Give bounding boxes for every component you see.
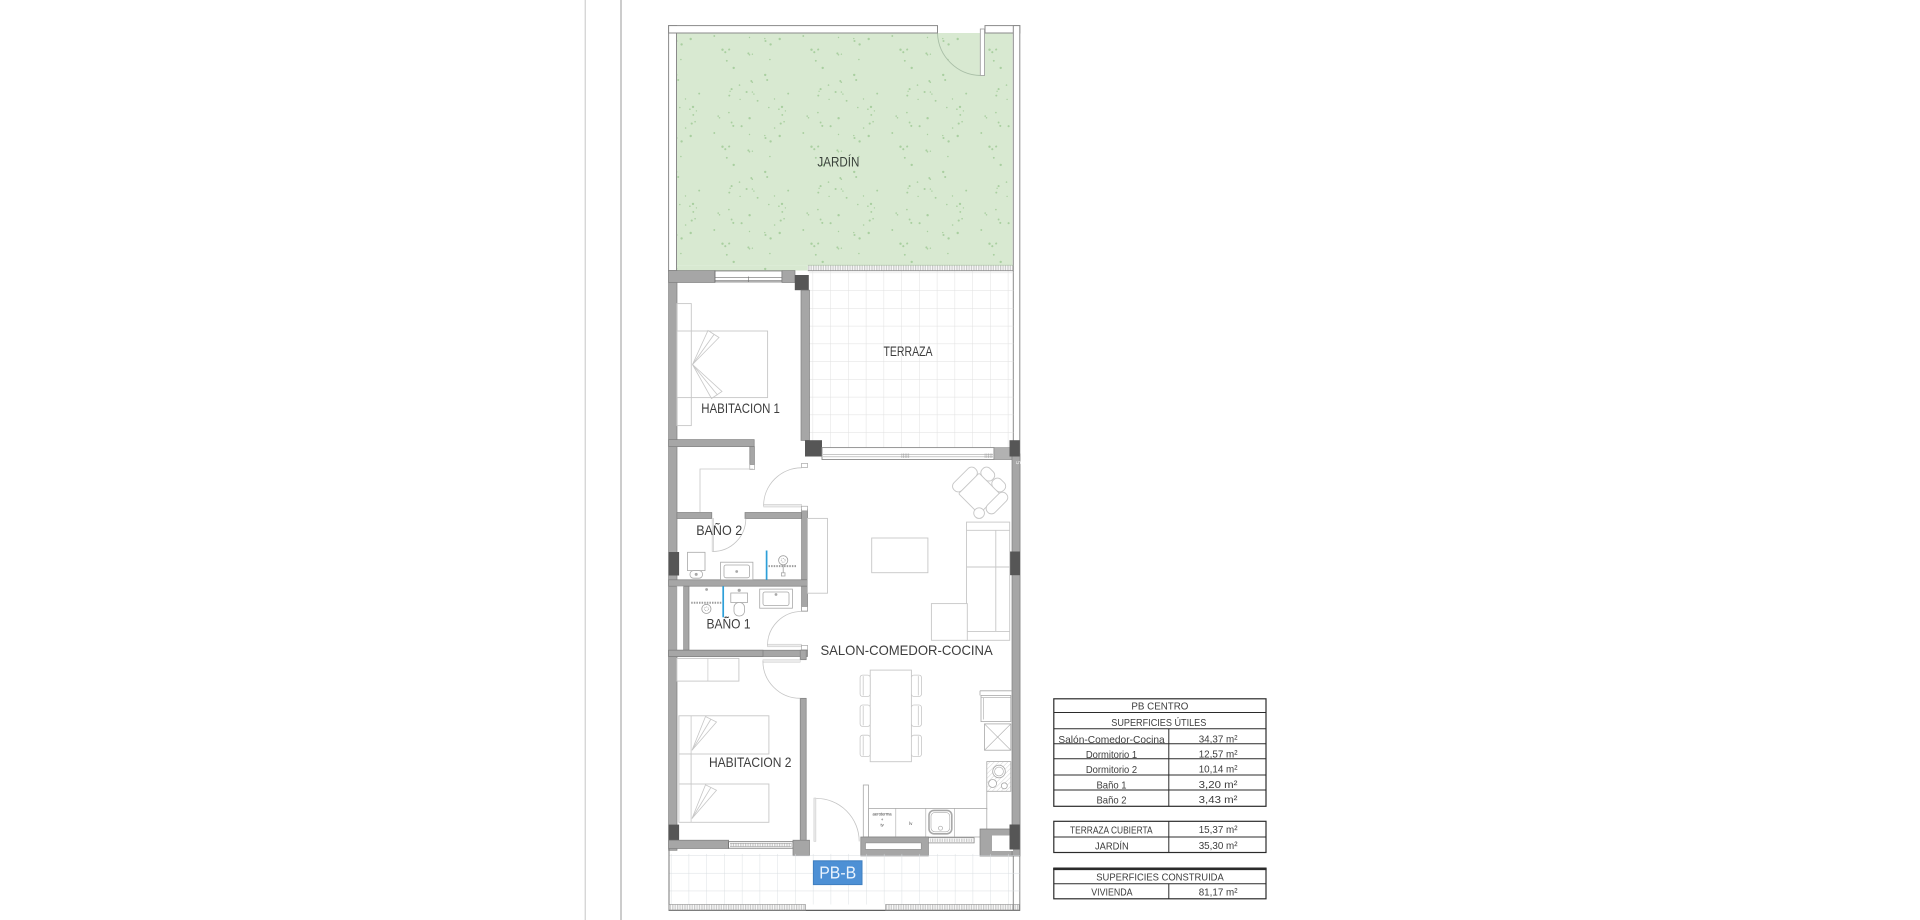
svg-text:PB-B: PB-B xyxy=(819,863,856,883)
svg-text:2: 2 xyxy=(1027,461,1033,465)
svg-text:Dormitorio 1: Dormitorio 1 xyxy=(1086,750,1137,761)
svg-text:JARDÍN: JARDÍN xyxy=(817,154,859,170)
svg-text:TERRAZA: TERRAZA xyxy=(884,343,933,359)
svg-text:Dormitorio 2: Dormitorio 2 xyxy=(1086,765,1137,776)
svg-text:HABITACION 2: HABITACION 2 xyxy=(709,754,792,770)
svg-text:Baño 1: Baño 1 xyxy=(1097,780,1127,791)
svg-text:15,37 m²: 15,37 m² xyxy=(1199,825,1238,836)
svg-text:JARDÍN: JARDÍN xyxy=(1095,839,1129,852)
svg-text:34,37 m²: 34,37 m² xyxy=(1199,735,1238,746)
svg-text:10,14 m²: 10,14 m² xyxy=(1199,765,1238,776)
svg-text:SUPERFICIES CONSTRUIDA: SUPERFICIES CONSTRUIDA xyxy=(1096,873,1224,884)
svg-text:Salón-Comedor-Cocina: Salón-Comedor-Cocina xyxy=(1058,735,1165,746)
svg-text:35,30 m²: 35,30 m² xyxy=(1199,841,1238,852)
svg-text:12,57 m²: 12,57 m² xyxy=(1199,750,1238,761)
svg-text:HABITACION 1: HABITACION 1 xyxy=(701,400,780,416)
svg-text:VIVIENDA: VIVIENDA xyxy=(1091,888,1132,899)
svg-text:BAÑO 1: BAÑO 1 xyxy=(707,615,751,631)
svg-text:BAÑO 2: BAÑO 2 xyxy=(696,522,742,538)
svg-text:SALON-COMEDOR-COCINA: SALON-COMEDOR-COCINA xyxy=(820,642,993,658)
svg-text:SUPERFICIES ÚTILES: SUPERFICIES ÚTILES xyxy=(1111,716,1206,729)
svg-text:TERRAZA CUBIERTA: TERRAZA CUBIERTA xyxy=(1070,826,1153,837)
svg-text:3,20 m²: 3,20 m² xyxy=(1199,780,1238,791)
svg-text:aeroterma: aeroterma xyxy=(873,812,893,817)
svg-text:Baño 2: Baño 2 xyxy=(1097,796,1127,807)
svg-text:PB CENTRO: PB CENTRO xyxy=(1131,702,1188,713)
svg-text:3,43 m²: 3,43 m² xyxy=(1199,795,1238,806)
svg-text:81,17 m²: 81,17 m² xyxy=(1199,887,1238,898)
